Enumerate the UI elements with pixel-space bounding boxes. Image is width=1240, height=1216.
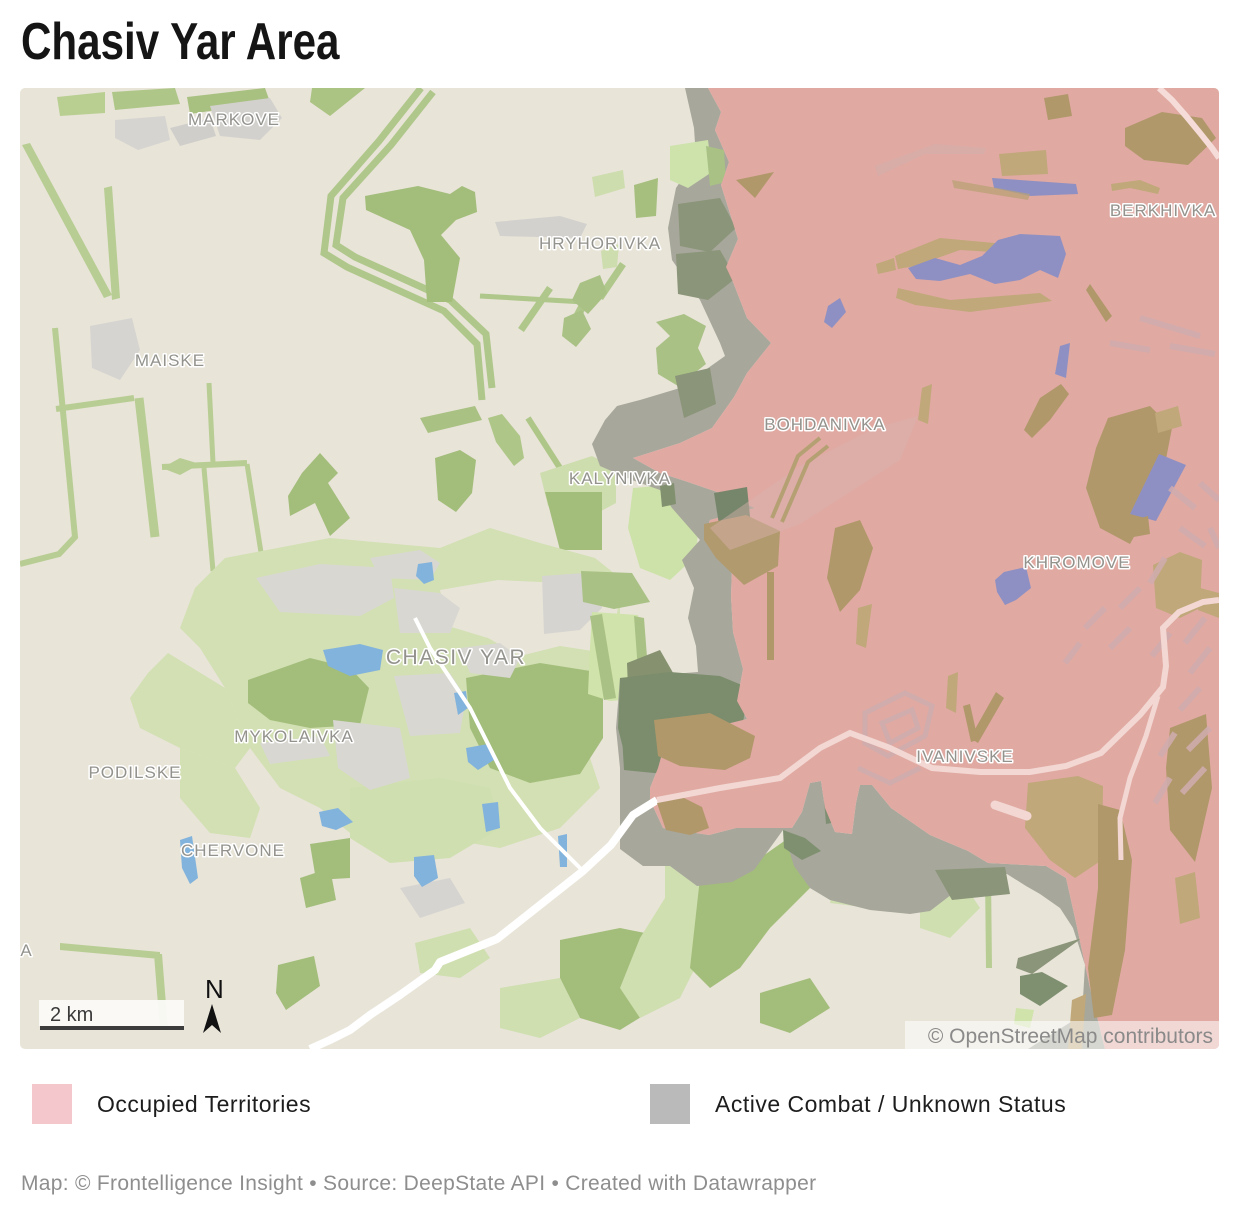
svg-text:IVKA: IVKA bbox=[20, 941, 33, 960]
svg-text:CHASIV YAR: CHASIV YAR bbox=[386, 646, 526, 669]
svg-text:© OpenStreetMap contributors: © OpenStreetMap contributors bbox=[928, 1025, 1213, 1048]
svg-text:MAISKE: MAISKE bbox=[135, 351, 205, 370]
svg-text:PODILSKE: PODILSKE bbox=[88, 763, 181, 782]
svg-text:2 km: 2 km bbox=[50, 1004, 93, 1026]
svg-text:HRYHORIVKA: HRYHORIVKA bbox=[539, 234, 661, 253]
svg-text:KALYNIVKA: KALYNIVKA bbox=[569, 469, 671, 488]
svg-text:BERKHIVKA: BERKHIVKA bbox=[1110, 201, 1216, 220]
svg-text:IVANIVSKE: IVANIVSKE bbox=[916, 747, 1014, 766]
svg-text:N: N bbox=[205, 974, 224, 1004]
svg-text:BOHDANIVKA: BOHDANIVKA bbox=[764, 415, 885, 434]
svg-text:CHERVONE: CHERVONE bbox=[181, 841, 285, 860]
svg-text:MARKOVE: MARKOVE bbox=[188, 110, 280, 129]
svg-text:MYKOLAIVKA: MYKOLAIVKA bbox=[234, 727, 354, 746]
svg-text:KHROMOVE: KHROMOVE bbox=[1023, 553, 1130, 572]
